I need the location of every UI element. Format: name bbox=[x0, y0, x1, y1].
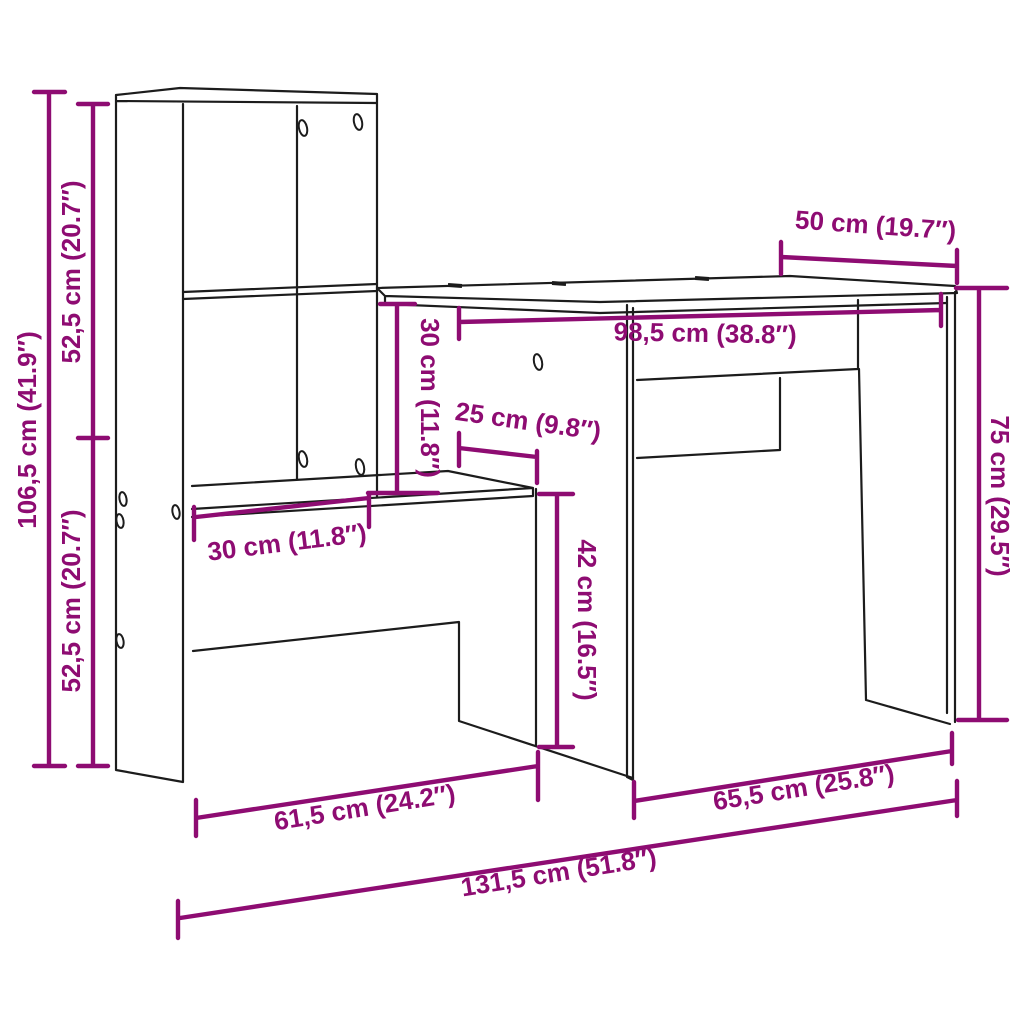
dimension-shelf-unit-base-width: 61,5 cm (24.2″) bbox=[196, 752, 538, 836]
dimension-desktop-width: 98,5 cm (38.8″) bbox=[459, 294, 941, 350]
dimension-label-overall-height: 106,5 cm (41.9″) bbox=[12, 331, 42, 528]
screw-hole bbox=[352, 113, 363, 130]
dimension-lower-section-height: 52,5 cm (20.7″) bbox=[56, 438, 108, 766]
furniture-dimension-diagram: 106,5 cm (41.9″) 52,5 cm (20.7″) 52,5 cm… bbox=[0, 0, 1024, 1024]
bookcase-shelf-divider bbox=[183, 284, 377, 299]
product-dimension-image: 106,5 cm (41.9″) 52,5 cm (20.7″) 52,5 cm… bbox=[0, 0, 1024, 1024]
dimension-shelf-depth: 30 cm (11.8″) bbox=[194, 494, 369, 567]
dimension-label-lower-section: 52,5 cm (20.7″) bbox=[56, 509, 86, 692]
dimension-label-desk-depth: 50 cm (19.7″) bbox=[794, 204, 957, 245]
dimension-label-overall-width: 131,5 cm (51.8″) bbox=[459, 842, 659, 903]
desk-right-panel bbox=[859, 292, 955, 724]
dimension-upper-section-height: 52,5 cm (20.7″) bbox=[56, 104, 108, 438]
dimension-label-shelf-side-depth: 25 cm (9.8″) bbox=[453, 396, 603, 446]
screw-hole bbox=[118, 491, 127, 506]
screw-hole bbox=[171, 504, 180, 519]
pedestal-recess bbox=[637, 378, 780, 458]
dimension-label-desk-section-width: 65,5 cm (25.8″) bbox=[711, 758, 896, 816]
dimension-line bbox=[539, 494, 573, 747]
dimension-desktop-to-shelf-gap: 30 cm (11.8″) bbox=[368, 304, 445, 493]
dimension-desk-height: 75 cm (29.5″) bbox=[956, 288, 1015, 720]
desktop bbox=[377, 276, 957, 313]
dimension-label-under-shelf-clearance: 42 cm (16.5″) bbox=[572, 539, 602, 700]
screw-hole bbox=[532, 353, 543, 370]
dimension-label-shelf-depth: 30 cm (11.8″) bbox=[206, 517, 368, 566]
screw-hole bbox=[354, 458, 365, 475]
dimension-label-desk-height: 75 cm (29.5″) bbox=[985, 415, 1015, 576]
dimension-desk-section-width: 65,5 cm (25.8″) bbox=[634, 733, 952, 818]
bookcase-outline bbox=[116, 88, 377, 782]
desk-pedestal bbox=[627, 305, 633, 780]
dimension-under-shelf-clearance: 42 cm (16.5″) bbox=[539, 494, 602, 747]
dimension-label-shelf-unit-base-width: 61,5 cm (24.2″) bbox=[272, 778, 457, 836]
dimension-shelf-side-depth: 25 cm (9.8″) bbox=[453, 396, 603, 483]
screw-hole bbox=[297, 119, 308, 136]
dimension-desk-depth: 50 cm (19.7″) bbox=[781, 204, 957, 283]
screw-holes bbox=[115, 113, 543, 648]
screw-hole bbox=[297, 450, 308, 467]
dimension-annotations: 106,5 cm (41.9″) 52,5 cm (20.7″) 52,5 cm… bbox=[12, 92, 1015, 938]
dimension-label-desktop-width: 98,5 cm (38.8″) bbox=[613, 316, 797, 349]
dimension-label-upper-section: 52,5 cm (20.7″) bbox=[56, 180, 86, 363]
dimension-label-desktop-to-shelf-gap: 30 cm (11.8″) bbox=[415, 318, 445, 478]
